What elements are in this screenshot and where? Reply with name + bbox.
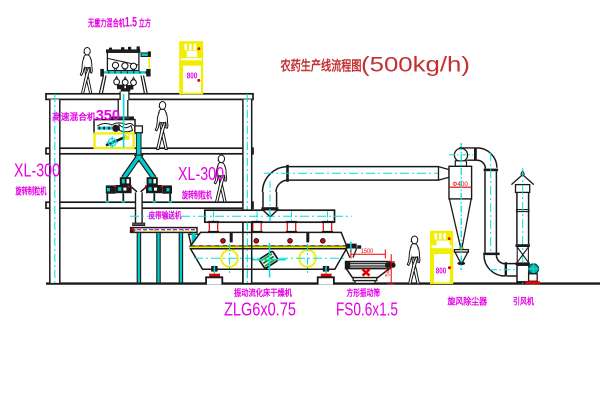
svg-text:旋转制粒机: 旋转制粒机: [15, 186, 47, 198]
svg-text:XL-300: XL-300: [178, 163, 224, 184]
svg-text:541: 541: [384, 266, 391, 277]
svg-text:旋风除尘器: 旋风除尘器: [447, 296, 488, 307]
svg-text:1500: 1500: [361, 248, 373, 255]
svg-text:ZLG6x0.75: ZLG6x0.75: [224, 300, 296, 320]
svg-text:方形振动筛: 方形振动筛: [347, 287, 381, 298]
svg-text:(500kg/h): (500kg/h): [361, 53, 470, 77]
svg-text:皮带输送机: 皮带输送机: [148, 210, 182, 221]
svg-text:XL-300: XL-300: [14, 160, 60, 181]
svg-text:800: 800: [436, 266, 447, 275]
svg-text:振动流化床干燥机: 振动流化床干燥机: [234, 287, 292, 298]
svg-text:农药生产线流程图: 农药生产线流程图: [280, 58, 362, 74]
svg-text:FS0.6x1.5: FS0.6x1.5: [336, 300, 398, 320]
svg-text:引风机: 引风机: [513, 296, 534, 307]
svg-text:旋转制粒机: 旋转制粒机: [181, 190, 212, 202]
svg-text:800: 800: [187, 72, 198, 81]
